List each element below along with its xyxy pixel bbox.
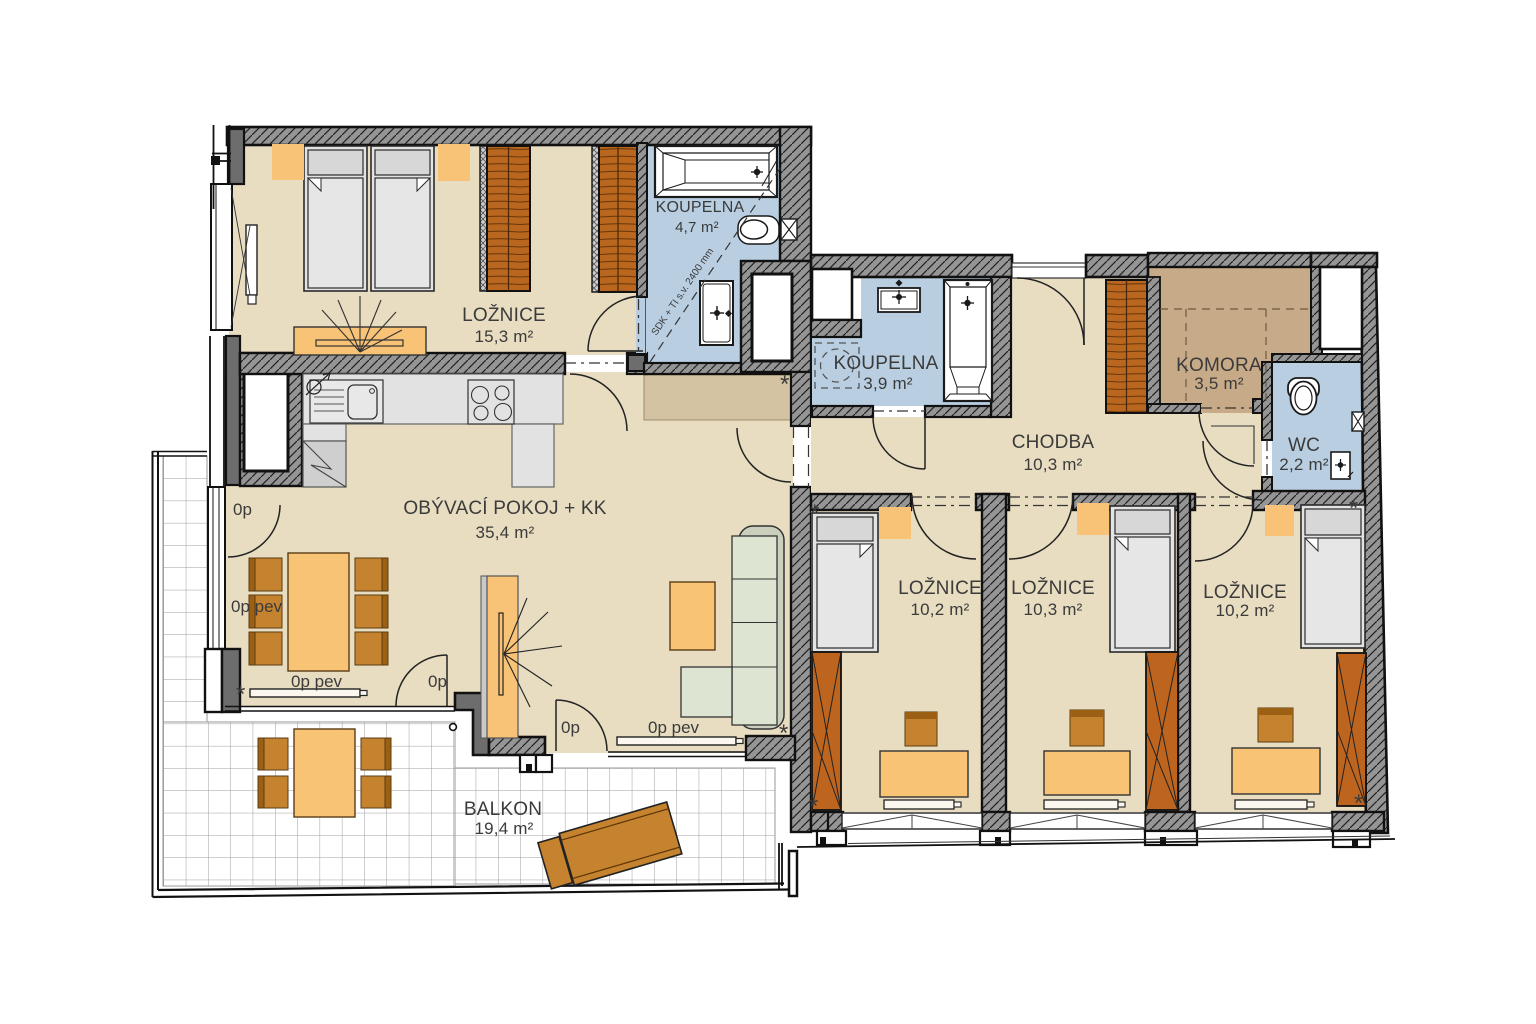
svg-text:3,5 m²: 3,5 m² xyxy=(1194,374,1244,393)
svg-text:LOŽNICE: LOŽNICE xyxy=(1203,581,1287,603)
svg-text:4,7 m²: 4,7 m² xyxy=(675,219,719,236)
svg-text:10,3 m²: 10,3 m² xyxy=(1023,600,1082,619)
svg-text:10,2 m²: 10,2 m² xyxy=(1215,601,1274,620)
svg-text:*: * xyxy=(809,793,818,820)
svg-text:OBÝVACÍ POKOJ + KK: OBÝVACÍ POKOJ + KK xyxy=(403,498,606,519)
svg-text:KOUPELNA: KOUPELNA xyxy=(656,199,745,216)
svg-text:2,2 m²: 2,2 m² xyxy=(1279,455,1329,474)
svg-text:0p: 0p xyxy=(233,500,252,519)
svg-text:LOŽNICE: LOŽNICE xyxy=(462,304,546,326)
svg-text:CHODBA: CHODBA xyxy=(1012,432,1095,453)
svg-text:LOŽNICE: LOŽNICE xyxy=(1011,577,1095,599)
svg-text:15,3 m²: 15,3 m² xyxy=(474,327,533,346)
svg-text:10,3 m²: 10,3 m² xyxy=(1023,455,1082,474)
svg-text:0p pev: 0p pev xyxy=(291,672,343,691)
svg-text:KOMORA: KOMORA xyxy=(1176,355,1262,376)
svg-text:*: * xyxy=(780,371,789,398)
svg-text:0p: 0p xyxy=(428,672,447,691)
svg-text:3,9 m²: 3,9 m² xyxy=(863,374,913,393)
svg-text:*: * xyxy=(1354,790,1363,817)
svg-text:*: * xyxy=(236,681,245,708)
svg-text:10,2 m²: 10,2 m² xyxy=(910,600,969,619)
svg-text:KOUPELNA: KOUPELNA xyxy=(833,353,938,374)
svg-text:BALKON: BALKON xyxy=(464,799,542,820)
svg-text:19,4 m²: 19,4 m² xyxy=(474,819,533,838)
svg-text:35,4 m²: 35,4 m² xyxy=(475,523,534,542)
svg-text:*: * xyxy=(1349,495,1358,522)
svg-text:0p: 0p xyxy=(561,718,580,737)
svg-text:0p pev: 0p pev xyxy=(648,718,700,737)
svg-text:*: * xyxy=(810,500,819,527)
svg-text:WC: WC xyxy=(1288,435,1320,456)
svg-text:LOŽNICE: LOŽNICE xyxy=(898,577,982,599)
svg-text:0p pev: 0p pev xyxy=(231,597,283,616)
svg-text:*: * xyxy=(779,720,788,747)
